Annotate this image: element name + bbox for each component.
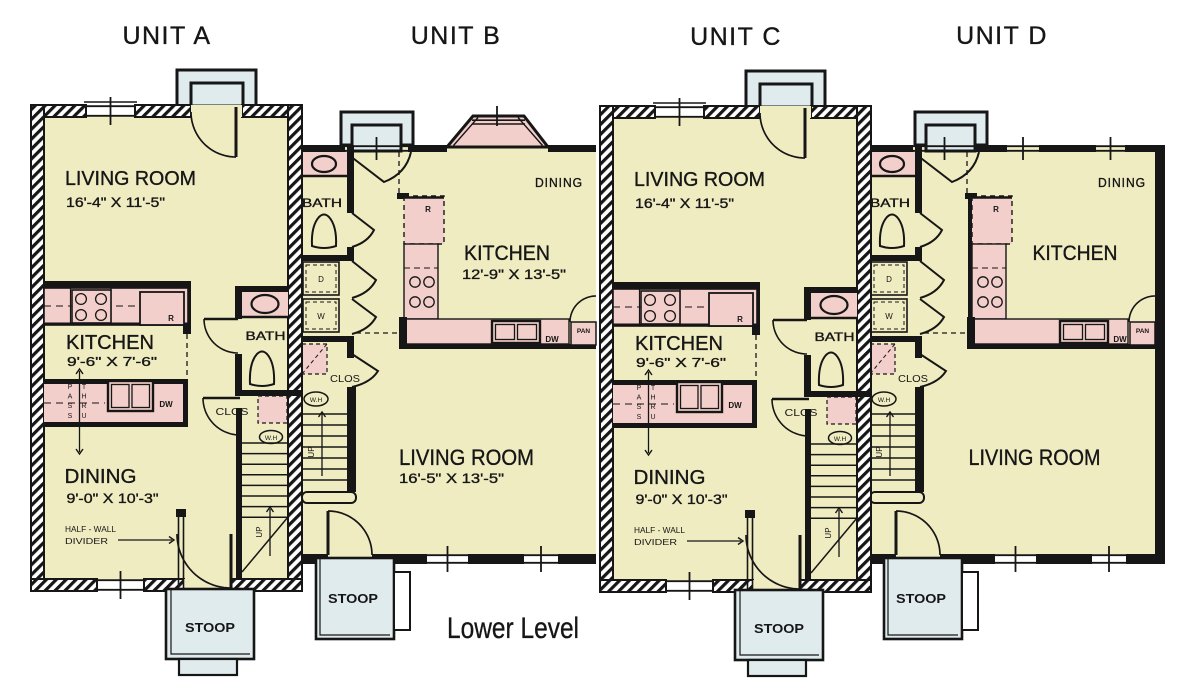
- svg-text:R: R: [650, 404, 655, 411]
- svg-text:UP: UP: [824, 527, 833, 538]
- svg-text:9'-0" X 10'-3": 9'-0" X 10'-3": [636, 492, 728, 507]
- svg-text:KITCHEN: KITCHEN: [635, 333, 723, 355]
- svg-text:STOOP: STOOP: [185, 621, 235, 635]
- svg-text:W: W: [885, 312, 893, 321]
- svg-text:S: S: [68, 413, 73, 420]
- svg-text:DINING: DINING: [65, 466, 137, 488]
- svg-text:P: P: [68, 384, 73, 391]
- svg-text:UP: UP: [307, 446, 316, 457]
- svg-text:U: U: [81, 413, 86, 420]
- svg-text:UNIT B: UNIT B: [411, 22, 502, 50]
- svg-text:UP: UP: [875, 446, 884, 457]
- svg-text:S: S: [637, 414, 642, 421]
- svg-text:12'-9" X 13'-5": 12'-9" X 13'-5": [462, 266, 566, 282]
- svg-text:LIVING ROOM: LIVING ROOM: [65, 168, 196, 190]
- svg-text:DW: DW: [545, 335, 559, 344]
- svg-text:16'-4" X 11'-5": 16'-4" X 11'-5": [635, 196, 734, 211]
- svg-text:Lower Level: Lower Level: [447, 612, 579, 645]
- svg-text:BATH: BATH: [815, 330, 855, 344]
- svg-text:UP: UP: [255, 526, 264, 537]
- svg-text:DIVIDER: DIVIDER: [634, 537, 677, 547]
- svg-text:LIVING ROOM: LIVING ROOM: [399, 445, 534, 470]
- svg-text:W.H: W.H: [834, 436, 847, 443]
- svg-text:BATH: BATH: [302, 196, 342, 210]
- svg-text:DINING: DINING: [535, 175, 583, 190]
- svg-text:KITCHEN: KITCHEN: [1033, 242, 1118, 265]
- svg-text:STOOP: STOOP: [328, 592, 378, 606]
- svg-text:DW: DW: [728, 401, 742, 410]
- svg-text:16'-5" X 13'-5": 16'-5" X 13'-5": [399, 470, 504, 486]
- svg-text:S: S: [637, 404, 642, 411]
- svg-text:R: R: [737, 315, 743, 324]
- svg-text:W.H: W.H: [310, 397, 323, 404]
- svg-text:CLOS: CLOS: [898, 374, 928, 385]
- svg-text:LIVING ROOM: LIVING ROOM: [969, 445, 1101, 470]
- svg-text:P: P: [637, 385, 642, 392]
- svg-text:PAN: PAN: [577, 328, 591, 335]
- svg-text:KITCHEN: KITCHEN: [66, 332, 154, 354]
- svg-text:9'-6" X 7'-6": 9'-6" X 7'-6": [636, 355, 727, 370]
- svg-text:CLOS: CLOS: [216, 407, 249, 418]
- svg-text:DW: DW: [159, 400, 173, 409]
- svg-text:A: A: [637, 395, 642, 402]
- svg-text:UNIT A: UNIT A: [122, 22, 211, 50]
- svg-text:W.H: W.H: [878, 397, 891, 404]
- svg-text:LIVING ROOM: LIVING ROOM: [634, 169, 765, 191]
- svg-text:D: D: [318, 275, 324, 284]
- svg-text:HALF - WALL: HALF - WALL: [634, 525, 685, 535]
- svg-text:HALF - WALL: HALF - WALL: [65, 524, 116, 534]
- svg-text:D: D: [886, 275, 892, 284]
- svg-text:DW: DW: [1113, 335, 1127, 344]
- svg-text:W.H: W.H: [265, 435, 278, 442]
- svg-text:H: H: [81, 394, 86, 401]
- svg-text:BATH: BATH: [870, 196, 910, 210]
- svg-text:KITCHEN: KITCHEN: [464, 242, 550, 265]
- svg-text:U: U: [650, 414, 655, 421]
- svg-text:H: H: [650, 395, 655, 402]
- svg-text:16'-4" X 11'-5": 16'-4" X 11'-5": [66, 195, 165, 210]
- svg-text:UNIT D: UNIT D: [956, 22, 1048, 50]
- svg-text:CLOS: CLOS: [785, 408, 818, 419]
- svg-text:BATH: BATH: [246, 329, 286, 343]
- svg-text:9'-6" X 7'-6": 9'-6" X 7'-6": [67, 354, 158, 369]
- svg-text:A: A: [68, 394, 73, 401]
- svg-text:CLOS: CLOS: [330, 374, 360, 385]
- svg-text:R: R: [993, 205, 999, 214]
- svg-text:T: T: [651, 385, 656, 392]
- svg-text:R: R: [81, 403, 86, 410]
- svg-text:T: T: [82, 384, 87, 391]
- svg-text:STOOP: STOOP: [754, 622, 804, 636]
- svg-text:S: S: [68, 403, 73, 410]
- svg-text:UNIT C: UNIT C: [690, 23, 782, 51]
- svg-text:9'-0" X 10'-3": 9'-0" X 10'-3": [67, 491, 159, 506]
- svg-text:W: W: [317, 312, 325, 321]
- svg-text:R: R: [425, 205, 431, 214]
- svg-text:DIVIDER: DIVIDER: [65, 536, 108, 546]
- svg-text:PAN: PAN: [1136, 328, 1150, 335]
- svg-text:DINING: DINING: [634, 467, 706, 489]
- svg-text:R: R: [168, 314, 174, 323]
- svg-text:DINING: DINING: [1098, 175, 1146, 190]
- svg-text:STOOP: STOOP: [896, 592, 946, 606]
